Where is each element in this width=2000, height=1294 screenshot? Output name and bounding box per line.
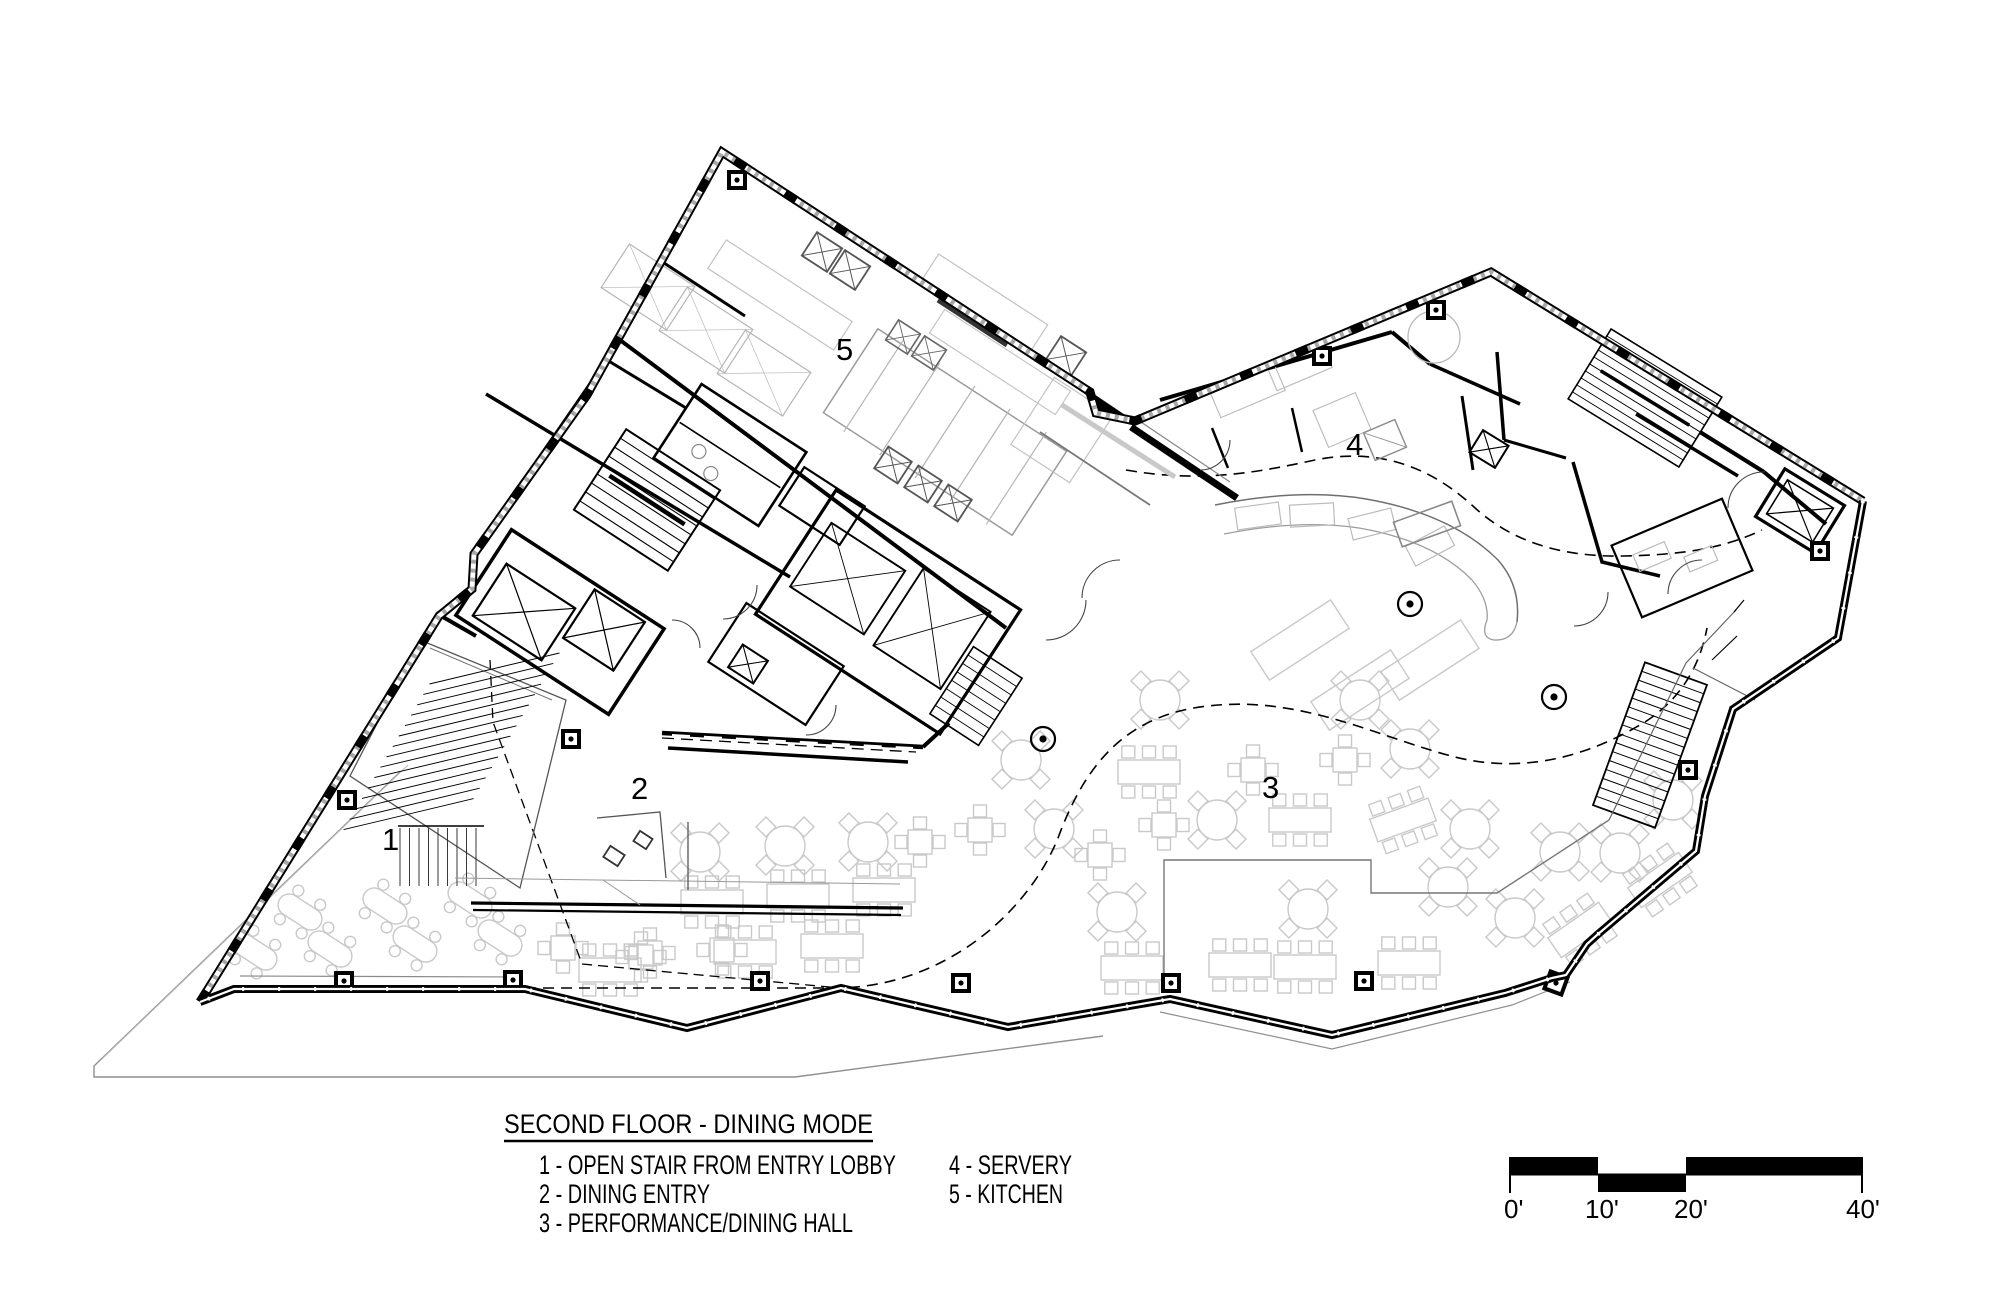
svg-text:0': 0' [1504, 1194, 1523, 1224]
svg-text:4 - SERVERY: 4 - SERVERY [949, 1150, 1072, 1180]
svg-text:1: 1 [382, 822, 399, 857]
svg-text:20': 20' [1674, 1194, 1708, 1224]
svg-text:2: 2 [631, 771, 648, 806]
svg-text:SECOND FLOOR - DINING MODE: SECOND FLOOR - DINING MODE [504, 1109, 873, 1139]
svg-text:4: 4 [1346, 427, 1363, 462]
svg-text:5: 5 [836, 332, 853, 367]
svg-text:10': 10' [1585, 1194, 1619, 1224]
svg-text:3: 3 [1262, 770, 1279, 805]
svg-text:3 - PERFORMANCE/DINING HALL: 3 - PERFORMANCE/DINING HALL [539, 1208, 853, 1238]
svg-text:40': 40' [1846, 1194, 1880, 1224]
svg-text:1 - OPEN STAIR FROM ENTRY LOBB: 1 - OPEN STAIR FROM ENTRY LOBBY [539, 1150, 896, 1180]
svg-text:5 - KITCHEN: 5 - KITCHEN [949, 1179, 1063, 1209]
svg-text:2 - DINING ENTRY: 2 - DINING ENTRY [539, 1179, 710, 1209]
